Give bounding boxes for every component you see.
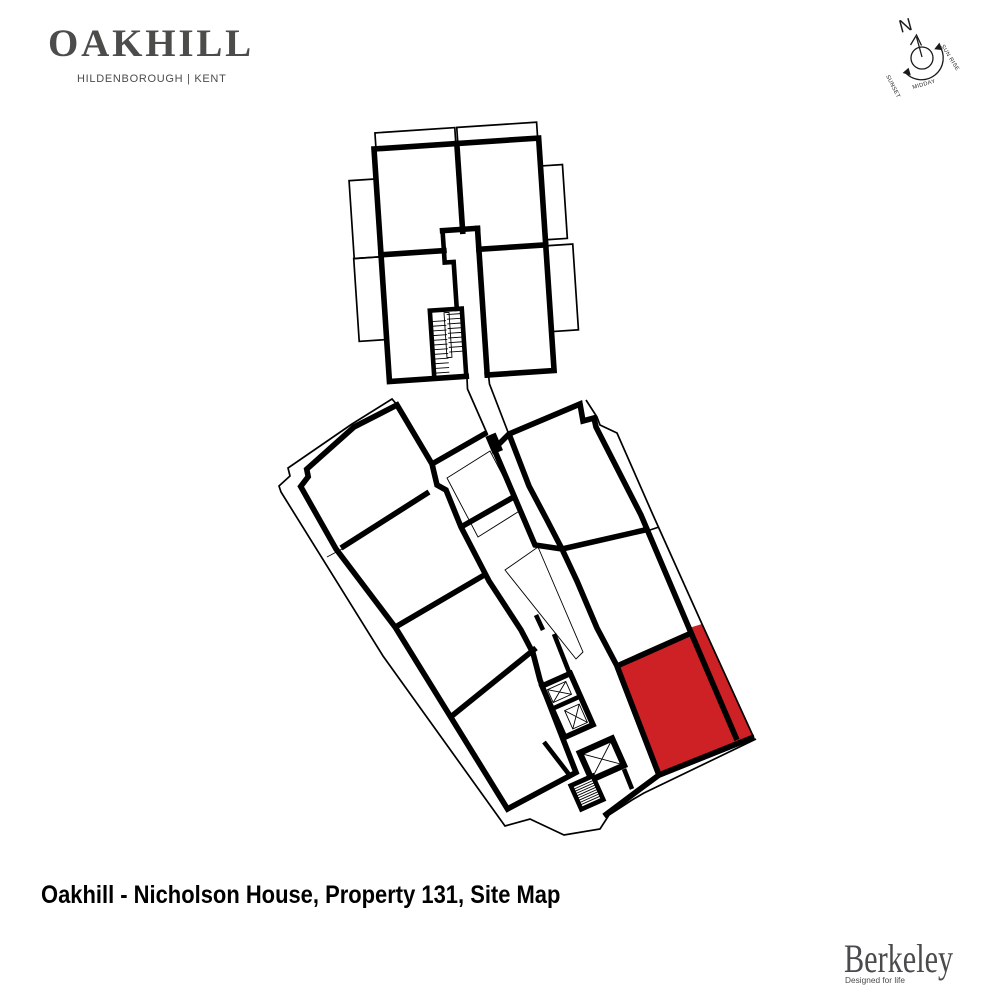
svg-text:HILDENBOROUGH | KENT: HILDENBOROUGH | KENT	[77, 73, 227, 85]
svg-text:Designed for life: Designed for life	[845, 975, 905, 985]
svg-text:OAKHILL: OAKHILL	[48, 22, 254, 65]
svg-text:Oakhill - Nicholson House, Pro: Oakhill - Nicholson House, Property 131,…	[41, 881, 560, 909]
